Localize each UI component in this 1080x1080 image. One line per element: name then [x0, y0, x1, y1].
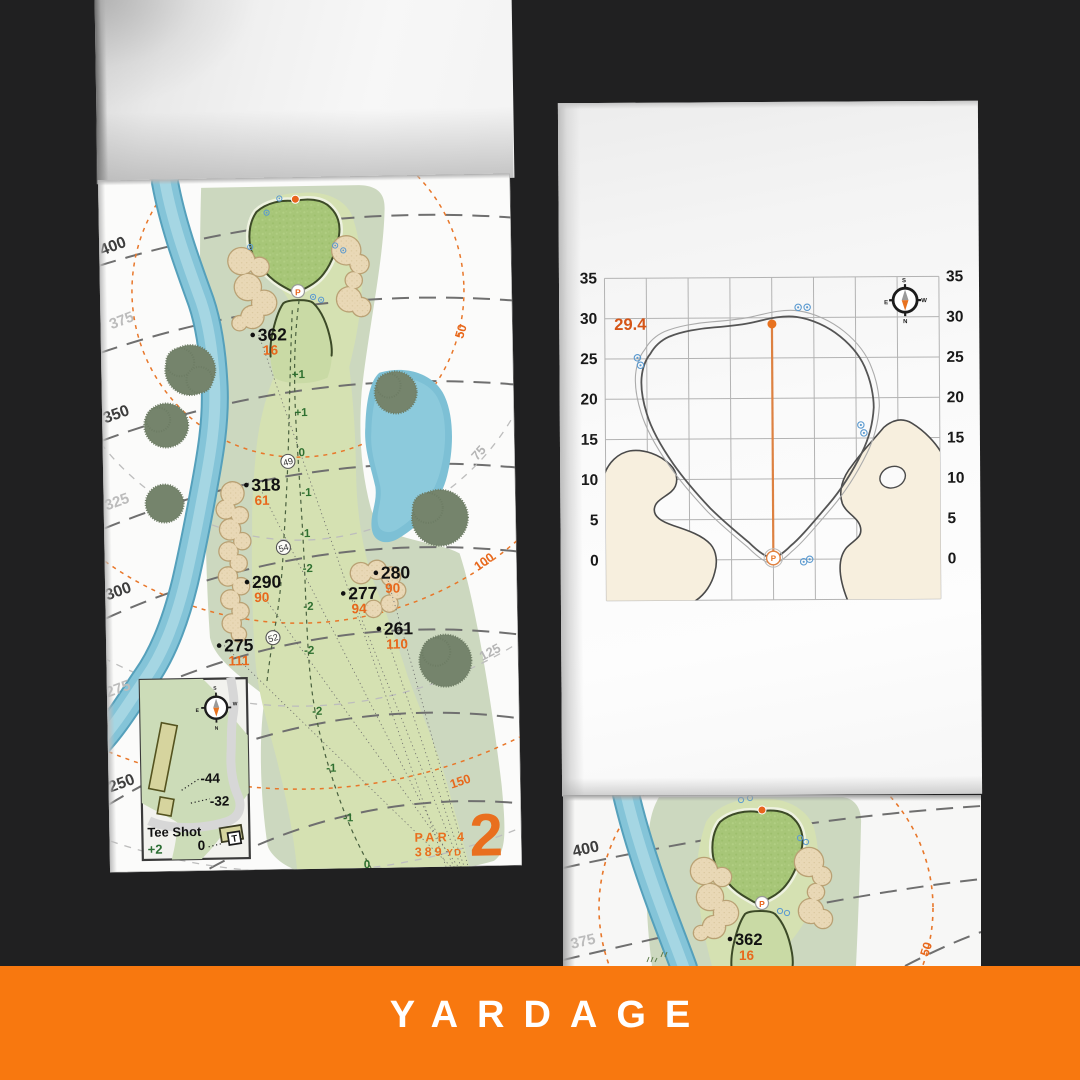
svg-text:0: 0	[590, 553, 599, 570]
svg-text:5: 5	[590, 512, 599, 529]
svg-text:E: E	[884, 300, 888, 306]
svg-text:20: 20	[580, 391, 597, 408]
svg-text:50: 50	[918, 940, 936, 958]
svg-text:362: 362	[735, 931, 763, 949]
svg-text:90: 90	[385, 580, 400, 595]
svg-text:100: 100	[472, 550, 497, 573]
svg-text:N: N	[215, 726, 219, 732]
svg-text:20: 20	[947, 389, 964, 406]
svg-text:P: P	[295, 287, 301, 297]
svg-text:16: 16	[739, 948, 755, 963]
svg-text:375: 375	[107, 308, 136, 333]
svg-text:5: 5	[947, 510, 956, 527]
svg-text:35: 35	[946, 268, 964, 285]
svg-text:W: W	[921, 298, 927, 304]
svg-text:75: 75	[468, 442, 489, 463]
svg-text:30: 30	[946, 309, 963, 326]
svg-text:15: 15	[581, 432, 599, 449]
svg-text:61: 61	[254, 493, 270, 508]
svg-text:-2: -2	[303, 601, 313, 613]
svg-text:25: 25	[580, 351, 598, 368]
svg-text:90: 90	[254, 590, 269, 605]
svg-text:+1: +1	[292, 369, 306, 381]
svg-text:-1: -1	[343, 812, 354, 824]
svg-text:-1: -1	[326, 763, 337, 775]
svg-text:S: S	[902, 278, 906, 284]
svg-text:+2: +2	[148, 842, 163, 857]
svg-text:16: 16	[263, 343, 279, 358]
svg-text:-2: -2	[303, 563, 313, 575]
svg-text:W: W	[233, 701, 238, 707]
svg-text:389YD: 389YD	[415, 844, 463, 859]
svg-text:35: 35	[580, 270, 598, 287]
svg-text:10: 10	[947, 470, 964, 487]
svg-text:25: 25	[946, 349, 964, 366]
svg-text:10: 10	[581, 472, 598, 489]
svg-text:N: N	[903, 319, 907, 325]
svg-text:29.4: 29.4	[614, 316, 647, 334]
svg-text:Tee Shot: Tee Shot	[147, 824, 202, 840]
svg-text:110: 110	[386, 636, 408, 651]
svg-text:111: 111	[228, 653, 250, 668]
svg-text:0: 0	[364, 859, 371, 871]
svg-text:0: 0	[197, 838, 205, 853]
svg-text:0: 0	[948, 550, 957, 567]
svg-text:-2: -2	[312, 706, 322, 718]
svg-text:2: 2	[469, 801, 504, 869]
svg-text:P: P	[759, 899, 765, 909]
svg-text:15: 15	[947, 429, 965, 446]
svg-text:0: 0	[298, 447, 305, 459]
svg-text:-1: -1	[300, 528, 311, 540]
svg-text:30: 30	[580, 311, 597, 328]
svg-text:400: 400	[571, 838, 601, 861]
svg-text:PAR 4: PAR 4	[414, 830, 467, 845]
svg-text:+1: +1	[294, 407, 308, 419]
svg-text:50: 50	[452, 323, 469, 340]
svg-text:-2: -2	[304, 645, 314, 657]
svg-text:P: P	[771, 554, 777, 563]
svg-text:-32: -32	[210, 793, 230, 808]
svg-text:-1: -1	[301, 487, 312, 499]
svg-text:94: 94	[351, 601, 367, 616]
svg-text:-44: -44	[200, 771, 220, 786]
